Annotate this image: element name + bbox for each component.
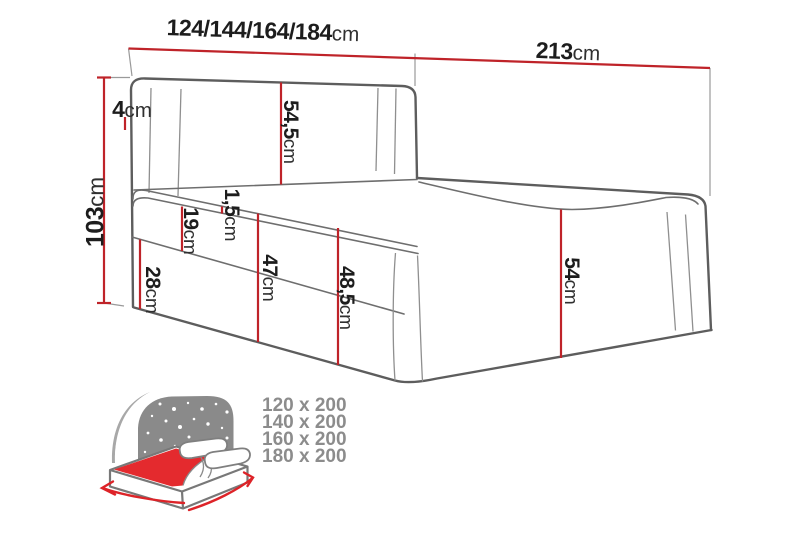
dim-label-side-corner: 48,5cm	[335, 266, 357, 330]
size-options-list: 120 x 200 140 x 200 160 x 200 180 x 200	[262, 397, 347, 465]
size-variant: 180 x 200	[262, 448, 347, 465]
mattress-edges	[132, 180, 698, 315]
dim-label-side-front: 47cm	[258, 254, 280, 302]
dim-label-topper: 1,5cm	[220, 189, 242, 242]
dim-label-length: 213cm	[535, 39, 600, 65]
dim-label-headboard-side: 4cm	[112, 98, 152, 122]
bed-icon	[102, 392, 253, 510]
bed-line-drawing	[0, 0, 800, 533]
dim-label-mattress: 19cm	[179, 207, 201, 255]
dim-label-total-height: 103cm	[84, 177, 109, 247]
dim-label-base: 28cm	[141, 266, 163, 314]
dim-label-headboard-height: 54,5cm	[279, 100, 301, 164]
diagram-canvas: 124/144/164/184cm 213cm 103cm 4cm 54,5cm…	[0, 0, 800, 533]
headboard-seams	[149, 88, 396, 196]
corner-seams	[393, 212, 693, 382]
dim-label-footboard: 54cm	[560, 257, 582, 305]
